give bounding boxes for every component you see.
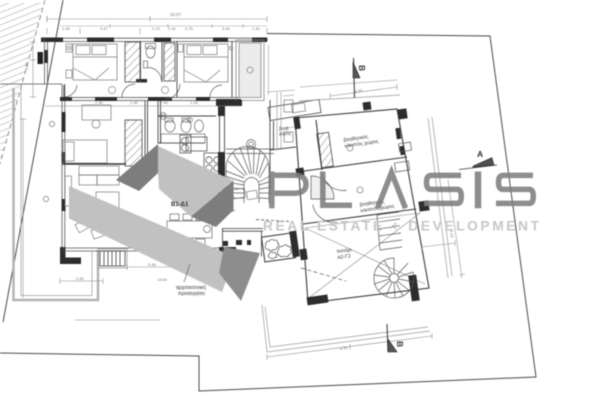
svg-text:1.40: 1.40 <box>168 26 177 31</box>
svg-text:αρχιτεκτονική: αρχιτεκτονική <box>176 284 206 291</box>
svg-text:A: A <box>477 149 483 159</box>
svg-text:2.40: 2.40 <box>160 100 169 105</box>
svg-text:3.40: 3.40 <box>76 276 85 281</box>
svg-text:3.46: 3.46 <box>222 26 231 31</box>
svg-text:5.48: 5.48 <box>148 262 157 267</box>
svg-text:14.60: 14.60 <box>157 277 168 282</box>
svg-text:1.40: 1.40 <box>95 100 104 105</box>
svg-text:χώρος: χώρος <box>279 131 291 136</box>
svg-text:1.46: 1.46 <box>62 26 71 31</box>
svg-text:B: B <box>357 65 367 71</box>
svg-text:1.40: 1.40 <box>252 26 261 31</box>
svg-text:0.70: 0.70 <box>152 26 161 31</box>
svg-text:2.45: 2.45 <box>190 100 199 105</box>
svg-text:B: B <box>395 341 405 347</box>
svg-text:16.07: 16.07 <box>170 12 182 17</box>
svg-text:προσεγγίσει: προσεγγίσει <box>178 291 205 297</box>
svg-text:2.45: 2.45 <box>130 100 139 105</box>
svg-text:3.85: 3.85 <box>24 61 29 70</box>
svg-text:REAL ESTATE + DEVELOPMENT: REAL ESTATE + DEVELOPMENT <box>263 219 540 234</box>
svg-text:0.75: 0.75 <box>185 26 194 31</box>
svg-text:4.47: 4.47 <box>100 26 109 31</box>
svg-text:B1-Δ1: B1-Δ1 <box>171 202 189 208</box>
